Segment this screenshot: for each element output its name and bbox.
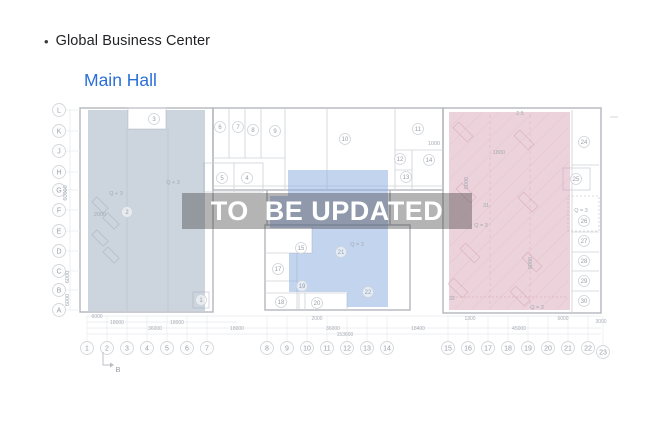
- page: • Global Business Center Main Hall: [0, 0, 660, 440]
- plan-note: 31: [483, 203, 489, 209]
- grid-row-labels: LKJHGFEDCBA: [53, 104, 81, 317]
- room-number: 17: [275, 267, 282, 273]
- plan-note: 6000: [528, 257, 534, 269]
- grid-col-label: 13: [363, 345, 371, 352]
- grid-col-label: 5: [165, 345, 169, 352]
- room-number: 28: [581, 259, 588, 265]
- grid-row-label: B: [57, 287, 62, 294]
- grid-col-label: 7: [205, 345, 209, 352]
- dimension-label: 18000: [170, 320, 184, 326]
- room-number: 27: [581, 239, 588, 245]
- plan-note: Q = 3: [350, 242, 364, 248]
- svg-text:B: B: [115, 365, 120, 374]
- grid-col-label: 18: [504, 345, 512, 352]
- plan-note: 32: [449, 296, 455, 302]
- dimension-label: 1300: [464, 316, 475, 322]
- room-number: 22: [365, 290, 372, 296]
- room-number: 12: [397, 157, 404, 163]
- grid-col-label: 16: [464, 345, 472, 352]
- plan-note: 6000: [65, 294, 71, 306]
- dimension-label: 153600: [337, 332, 354, 338]
- room-number: 21: [338, 250, 345, 256]
- dimension-label: 3000: [595, 319, 606, 325]
- grid-col-label: 4: [145, 345, 149, 352]
- grid-col-label: 3: [125, 345, 129, 352]
- grid-col-label: 10: [303, 345, 311, 352]
- grid-col-label: 15: [444, 345, 452, 352]
- room-number: 18: [278, 300, 285, 306]
- grid-row-label: J: [57, 148, 61, 155]
- section-marker: B: [103, 352, 121, 374]
- plan-note: 2000: [94, 212, 106, 218]
- grid-row-label: G: [56, 187, 61, 194]
- dimension-label: 18000: [230, 326, 244, 332]
- plan-note: Q = 3: [474, 223, 488, 229]
- dimension-label: 45000: [512, 326, 526, 332]
- plan-note: 6000: [464, 177, 470, 189]
- grid-row-label: L: [57, 107, 61, 114]
- grid-row-label: K: [57, 128, 62, 135]
- dimension-label: 18000: [110, 320, 124, 326]
- grid-col-label: 8: [265, 345, 269, 352]
- grid-col-label: 17: [484, 345, 492, 352]
- room-number: 11: [415, 127, 422, 133]
- watermark-banner: TO BE UPDATED: [182, 193, 472, 229]
- room-number: 24: [581, 140, 588, 146]
- grid-col-label: 20: [544, 345, 552, 352]
- room-number: 10: [342, 137, 349, 143]
- room-number: 26: [581, 219, 588, 225]
- grid-col-label: 2: [105, 345, 109, 352]
- grid-row-label: D: [56, 248, 61, 255]
- grid-row-label: C: [56, 268, 61, 275]
- room-number: 13: [403, 175, 410, 181]
- plan-note: 60000: [63, 185, 69, 200]
- grid-row-label: A: [57, 307, 62, 314]
- grid-col-label: 6: [185, 345, 189, 352]
- grid-col-label: 14: [383, 345, 391, 352]
- grid-col-label: 12: [343, 345, 351, 352]
- dimension-label: 2000: [311, 316, 322, 322]
- grid-col-label: 11: [323, 345, 330, 352]
- plan-note: 2.5: [516, 111, 524, 117]
- watermark-text: TO BE UPDATED: [211, 196, 444, 227]
- room-number: 20: [314, 301, 321, 307]
- room-number: 14: [426, 158, 433, 164]
- room-number: 15: [298, 246, 305, 252]
- room-number: 29: [581, 279, 588, 285]
- plan-note: Q + 3: [109, 191, 123, 197]
- plan-note: 1000: [428, 141, 440, 147]
- plan-note: Q = 3: [530, 305, 544, 311]
- grid-col-label: 19: [524, 345, 532, 352]
- grid-col-label: 9: [285, 345, 289, 352]
- room-number: 25: [573, 177, 580, 183]
- grid-row-label: F: [57, 207, 61, 214]
- grid-row-label: E: [57, 228, 62, 235]
- grid-col-label: 22: [584, 345, 592, 352]
- dimension-label: 6000: [557, 316, 568, 322]
- room-number: 19: [299, 284, 306, 290]
- room-number: 30: [581, 299, 588, 305]
- grid-row-label: H: [56, 169, 61, 176]
- dimension-label: 18400: [411, 326, 425, 332]
- grid-col-label: 1: [85, 345, 89, 352]
- dimension-label: 6000: [91, 314, 102, 320]
- plan-note: Q + 3: [166, 180, 180, 186]
- grid-col-label: 21: [564, 345, 572, 352]
- plan-note: 1800: [493, 150, 505, 156]
- dimension-label: 36000: [148, 326, 162, 332]
- grid-col-label: 23: [599, 349, 607, 356]
- dimension-labels: 6000180001800036000180002000360001840013…: [91, 314, 606, 338]
- plan-note: Q = 3: [574, 208, 588, 214]
- plan-note: 6000: [65, 271, 71, 283]
